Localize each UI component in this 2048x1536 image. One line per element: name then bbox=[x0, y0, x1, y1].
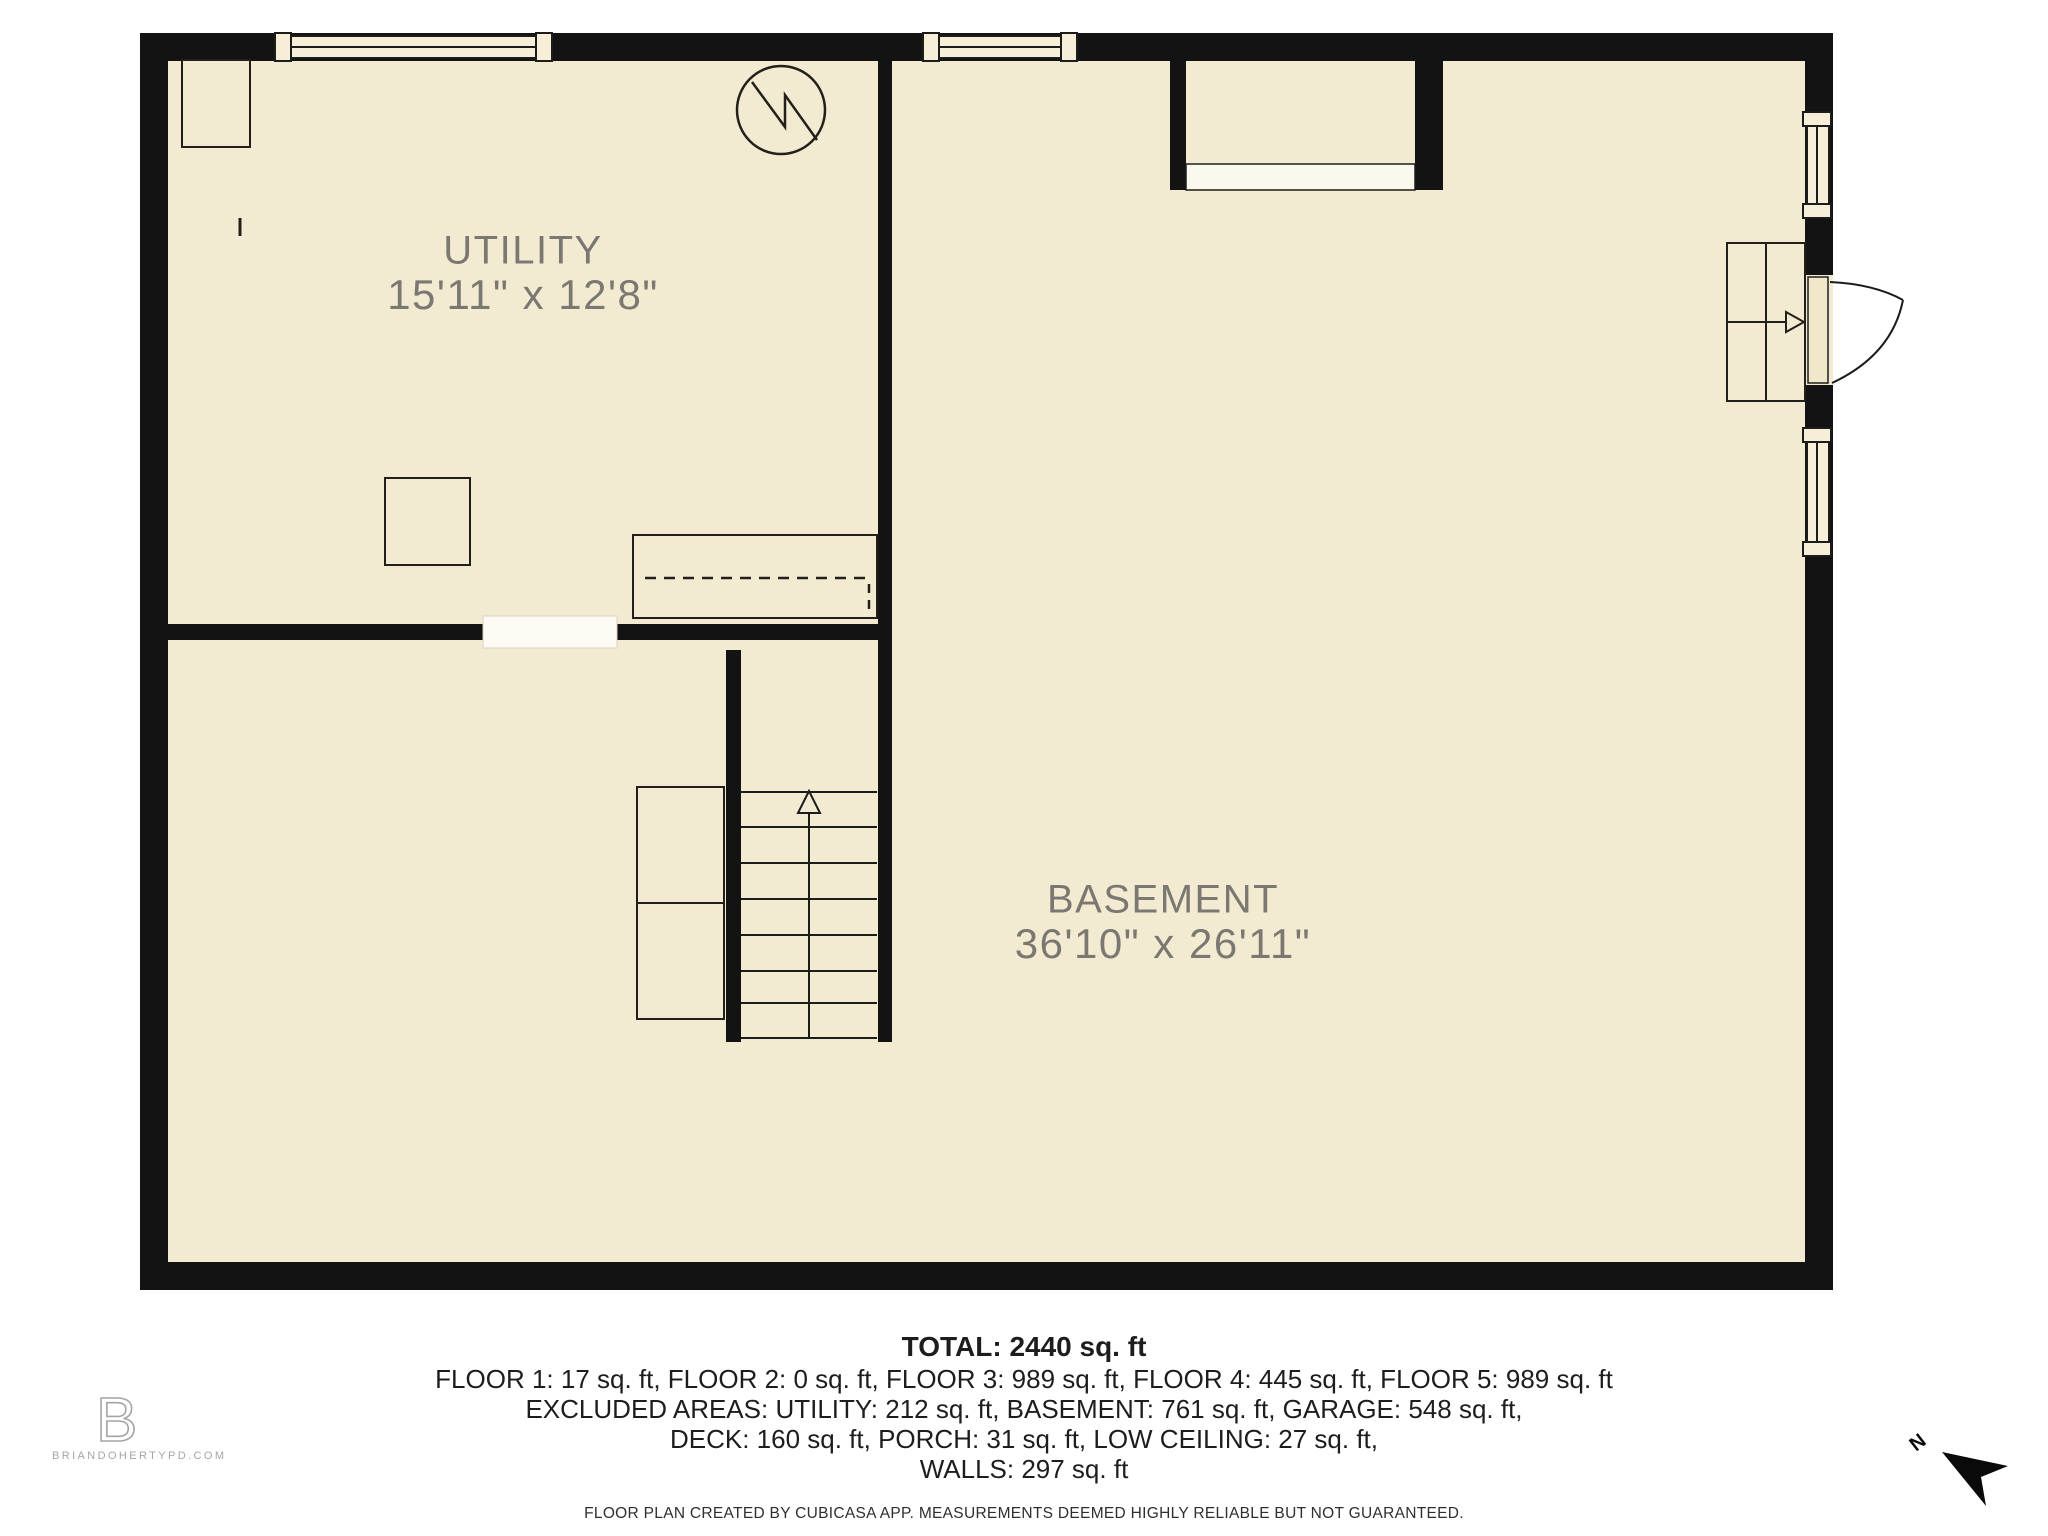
room-dims-basement: 36'10" x 26'11" bbox=[1015, 920, 1311, 968]
window-right-upper bbox=[1803, 112, 1831, 218]
room-label-utility: UTILITY bbox=[443, 229, 602, 274]
north-label: N bbox=[1906, 1430, 1931, 1456]
floor-plan-page: N B UTILITY 15'11" x 12'8" BASEMENT 36'1… bbox=[0, 0, 2048, 1536]
brand-logo-icon: B bbox=[96, 1386, 137, 1455]
branding-website: BRIANDOHERTYPD.COM bbox=[52, 1450, 226, 1462]
window-right-lower bbox=[1803, 428, 1831, 556]
stair-side-storage bbox=[637, 787, 724, 1019]
window-top-basement bbox=[923, 33, 1077, 61]
window-recess-band bbox=[1186, 164, 1415, 190]
room-dims-utility: 15'11" x 12'8" bbox=[387, 271, 659, 319]
floor-plan-drawing: N B bbox=[0, 0, 2048, 1536]
exterior-door bbox=[1805, 275, 1903, 385]
utility-doorway-opening bbox=[483, 616, 617, 648]
summary-walls: WALLS: 297 sq. ft bbox=[920, 1454, 1129, 1485]
north-arrow-icon: N bbox=[1906, 1430, 2008, 1506]
summary-excluded-2: DECK: 160 sq. ft, PORCH: 31 sq. ft, LOW … bbox=[670, 1424, 1378, 1455]
disclaimer-text: FLOOR PLAN CREATED BY CUBICASA APP. MEAS… bbox=[584, 1505, 1464, 1523]
water-heater bbox=[385, 478, 470, 565]
summary-total: TOTAL: 2440 sq. ft bbox=[902, 1331, 1147, 1363]
window-top-utility bbox=[275, 33, 552, 61]
summary-floors: FLOOR 1: 17 sq. ft, FLOOR 2: 0 sq. ft, F… bbox=[435, 1364, 1613, 1395]
entry-landing-steps bbox=[1727, 243, 1805, 401]
room-label-basement: BASEMENT bbox=[1047, 878, 1279, 923]
plan-outline bbox=[140, 33, 1833, 1290]
summary-excluded: EXCLUDED AREAS: UTILITY: 212 sq. ft, BAS… bbox=[525, 1394, 1522, 1425]
under-stair-closet bbox=[633, 535, 877, 618]
utility-cabinet bbox=[182, 60, 250, 147]
